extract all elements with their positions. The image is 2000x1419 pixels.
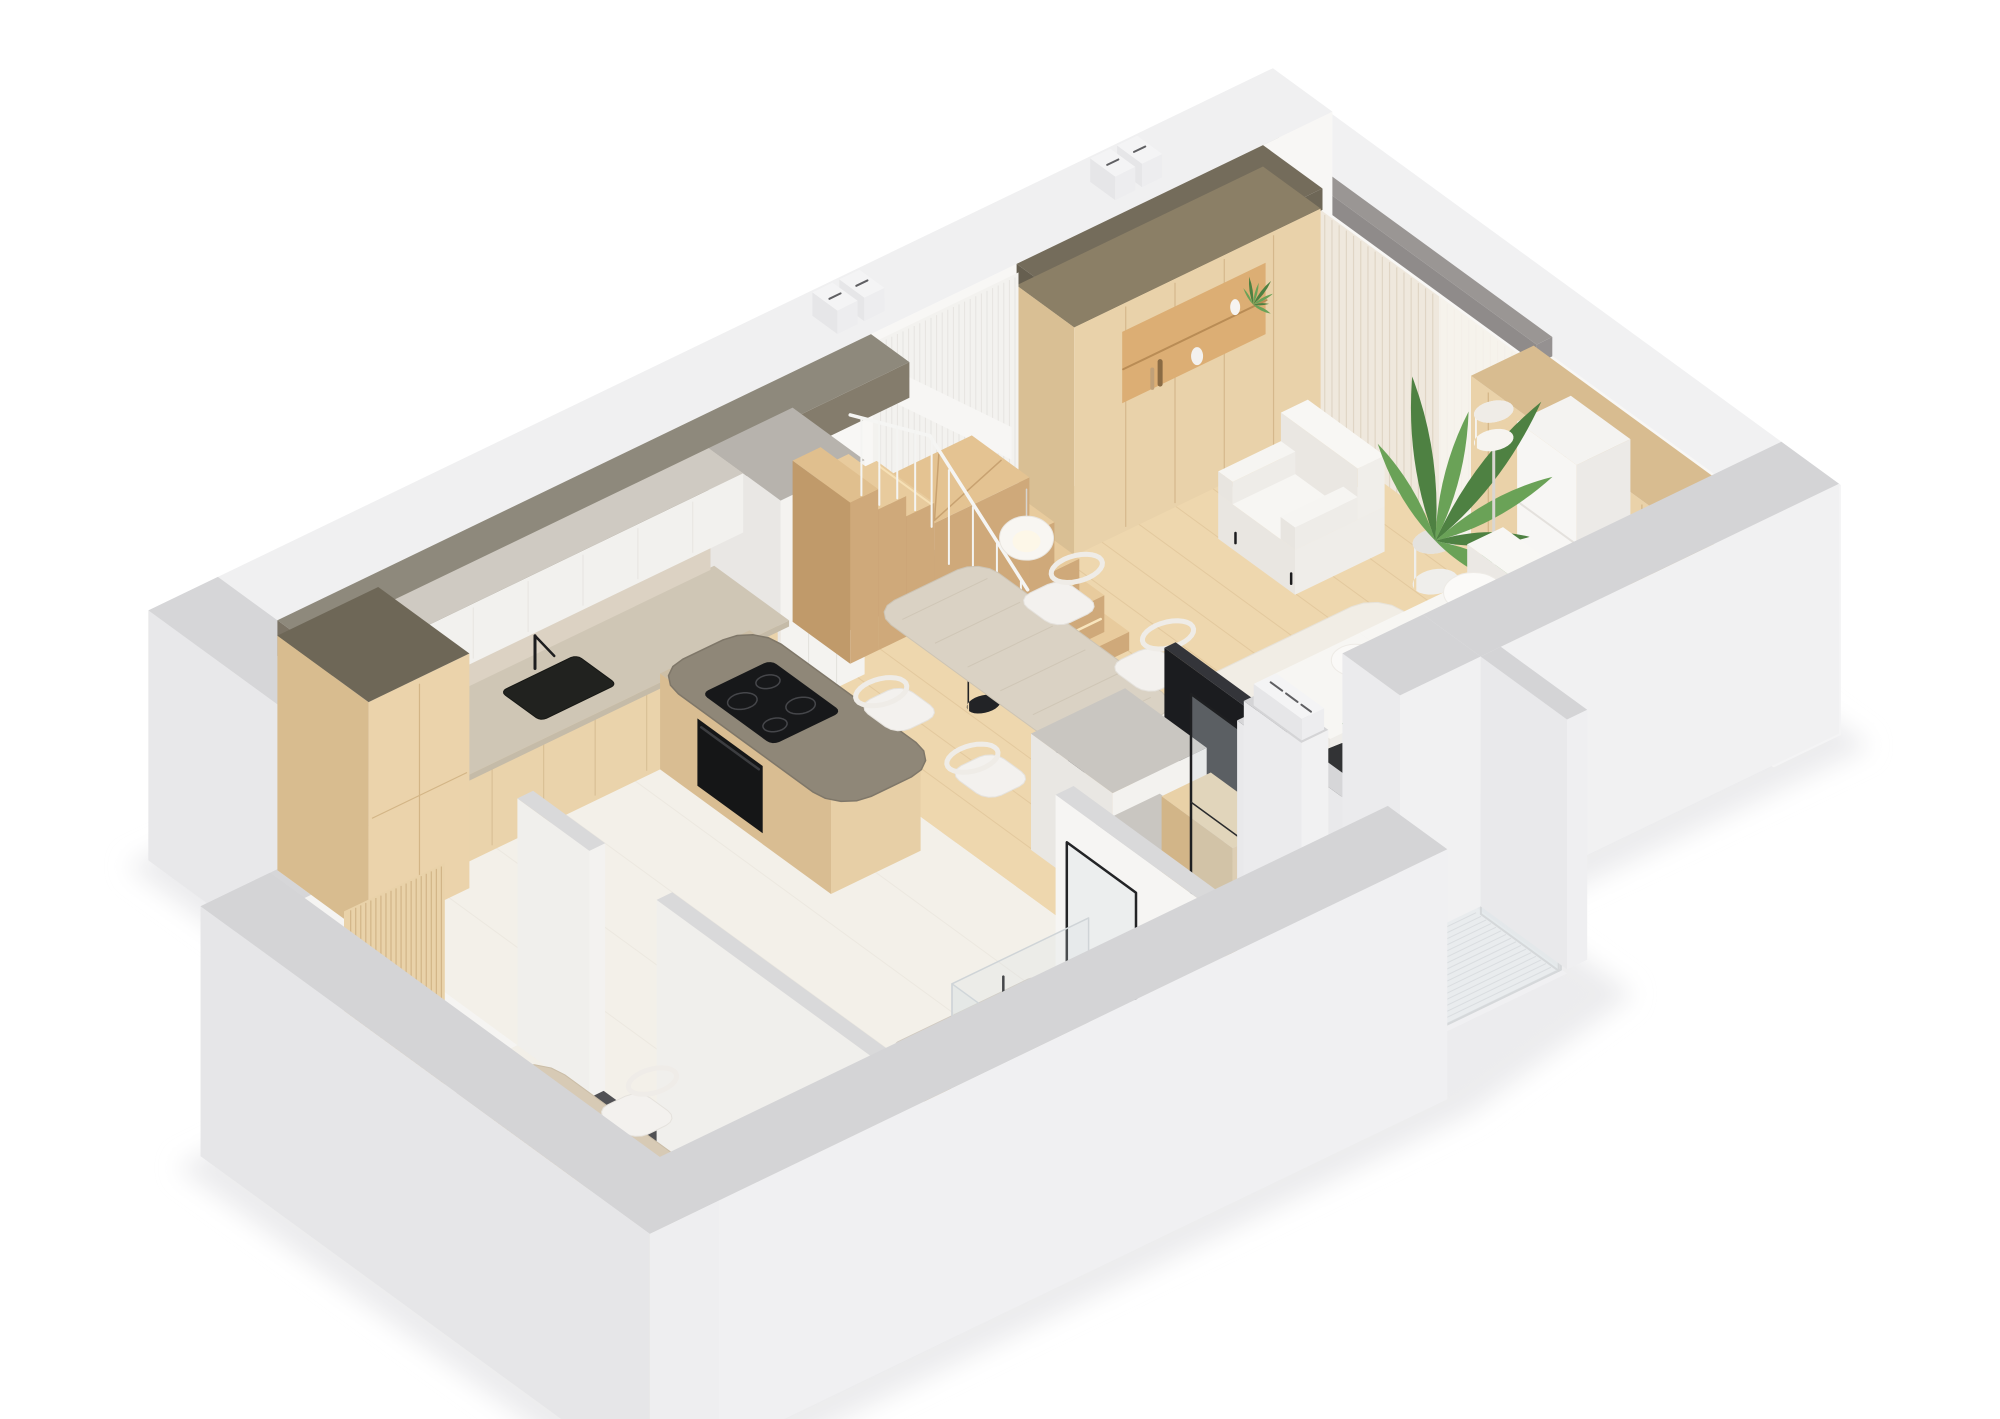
wall-wing-southwest-se bbox=[650, 1200, 719, 1419]
niche-vase-1 bbox=[1230, 299, 1240, 315]
wing-wall-a-sw bbox=[517, 798, 589, 1097]
niche-vase-2 bbox=[1191, 347, 1203, 365]
pendant-lamp-glow bbox=[1013, 530, 1041, 552]
floorplan-stage bbox=[0, 0, 2000, 1419]
stair-upper-3-se bbox=[850, 489, 878, 664]
wing-wall-a-se bbox=[589, 843, 605, 1097]
wall-porch-stub-se bbox=[1567, 710, 1587, 970]
floorplan-3d-render bbox=[0, 0, 2000, 1419]
